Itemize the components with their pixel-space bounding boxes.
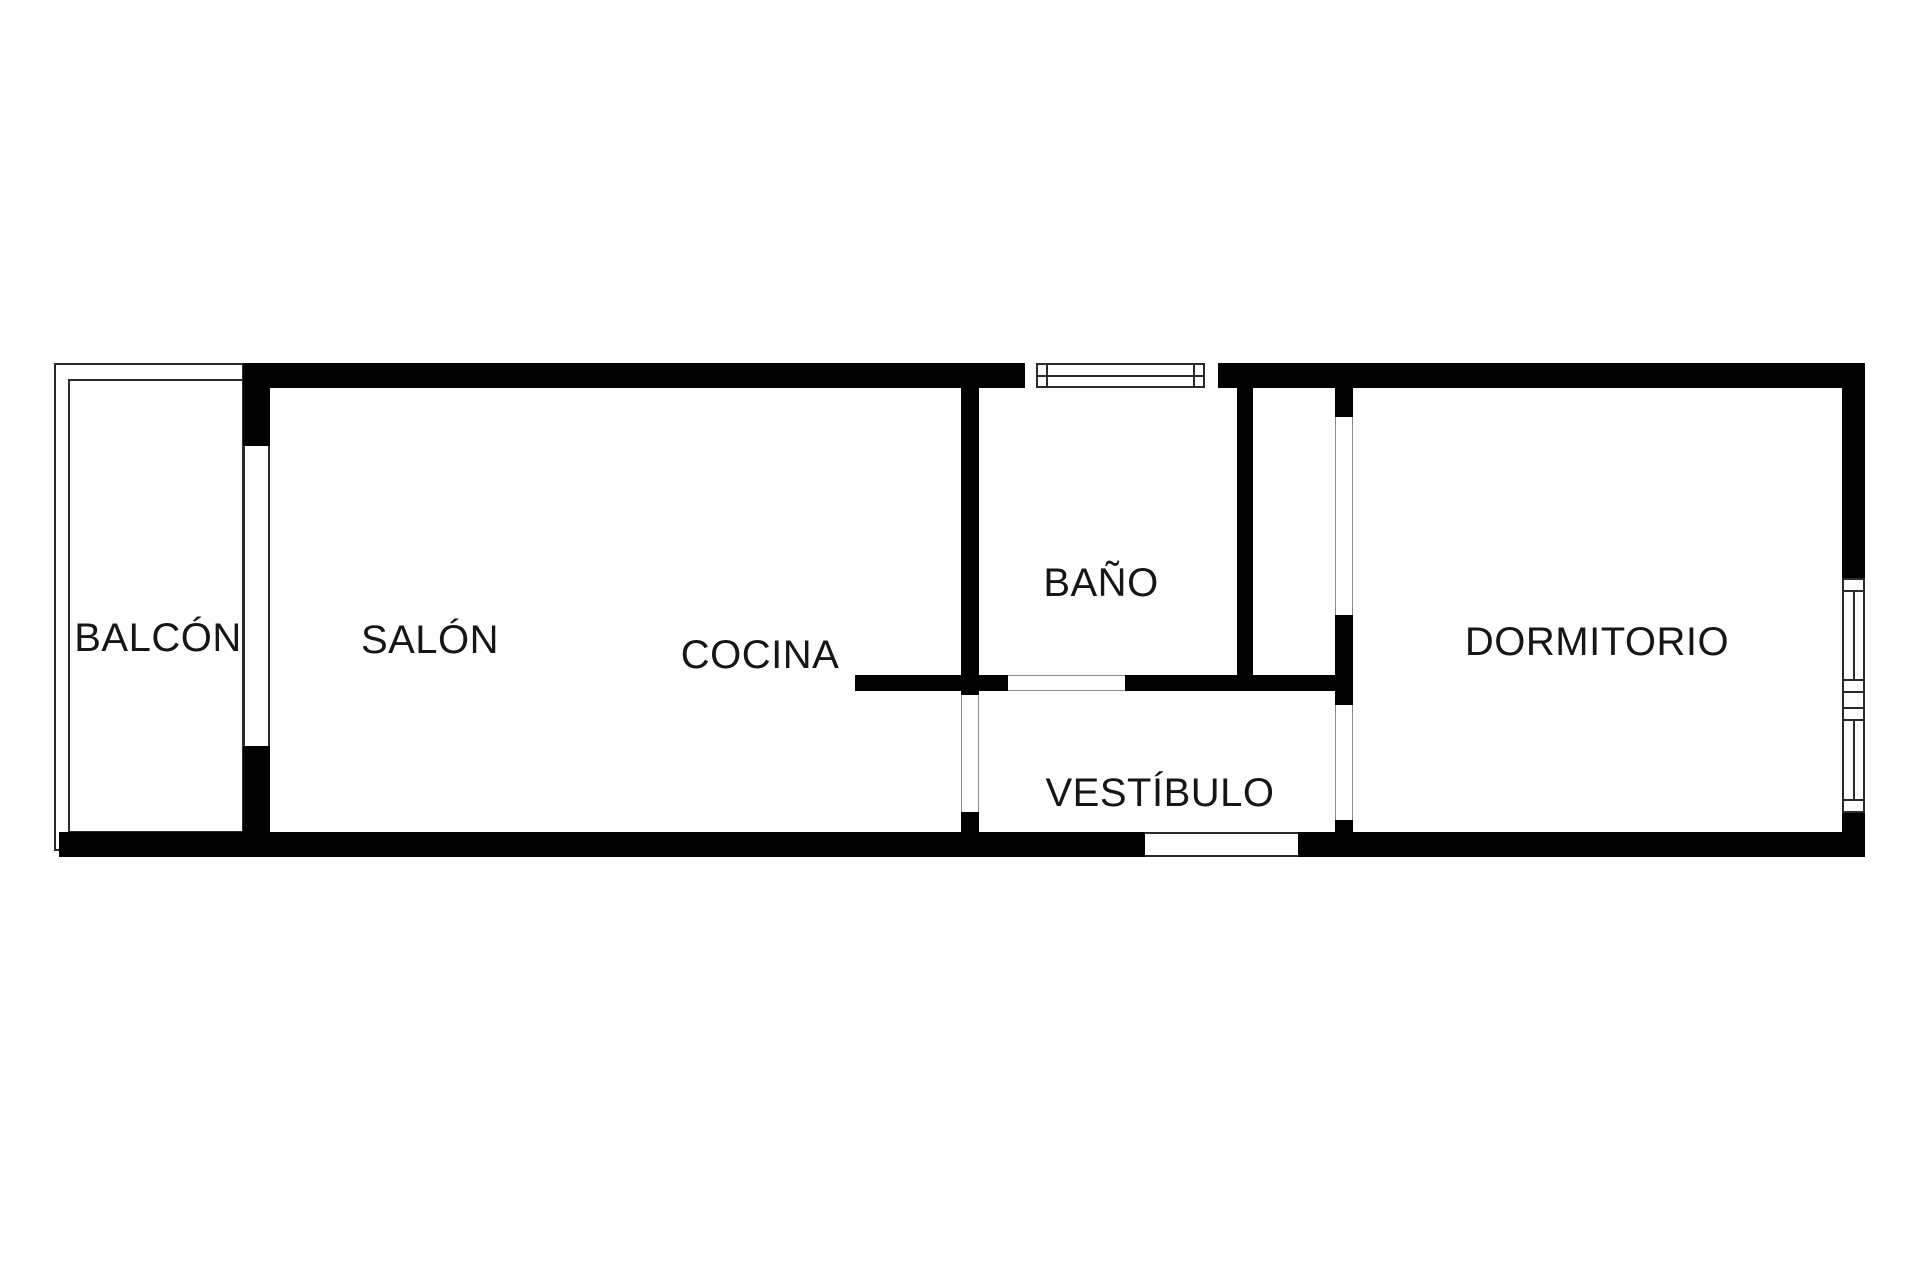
wall-bath-right bbox=[1237, 385, 1253, 691]
bath-door-opening bbox=[1008, 675, 1125, 691]
wall-kitchen-bath-vertical bbox=[961, 385, 979, 695]
right-window-upper-top-cap bbox=[1844, 590, 1863, 592]
wall-balcony-divider-top bbox=[243, 363, 270, 446]
wall-bottom-right-segment bbox=[1298, 832, 1865, 857]
wall-top-left-segment bbox=[243, 363, 1025, 388]
right-window-lower bbox=[1842, 707, 1865, 813]
top-window-left-cap bbox=[1046, 365, 1048, 386]
room-label-balcon: BALCÓN bbox=[74, 618, 242, 658]
right-window-lower-bottom-cap bbox=[1844, 799, 1863, 801]
right-window-upper bbox=[1842, 578, 1865, 693]
dormitorio-upper-opening bbox=[1335, 417, 1353, 615]
balcony-door-opening bbox=[243, 446, 270, 746]
wall-bath-south-right bbox=[1125, 675, 1337, 691]
wall-dormitorio-left-mid bbox=[1335, 615, 1353, 705]
wall-bath-south-left bbox=[979, 675, 1008, 691]
wall-kitchen-south bbox=[855, 675, 979, 691]
top-window bbox=[1036, 363, 1205, 388]
right-window-upper-mid-line bbox=[1853, 590, 1855, 681]
wall-top-right-segment bbox=[1218, 363, 1865, 388]
wall-dormitorio-left-bottom-stub bbox=[1335, 820, 1353, 834]
room-label-salon: SALÓN bbox=[361, 620, 499, 660]
room-label-cocina: COCINA bbox=[681, 635, 840, 675]
room-label-dormitorio: DORMITORIO bbox=[1465, 622, 1729, 662]
dormitorio-lower-opening bbox=[1335, 705, 1353, 820]
balcony-inner-outline bbox=[68, 379, 245, 833]
wall-right-upper-segment bbox=[1842, 363, 1865, 578]
entrance-opening bbox=[1145, 832, 1298, 857]
wall-vestibulo-left-stub bbox=[961, 812, 979, 834]
top-window-right-cap bbox=[1193, 365, 1195, 386]
right-window-upper-bottom-cap bbox=[1844, 679, 1863, 681]
wall-dormitorio-left-top-stub bbox=[1335, 385, 1353, 417]
top-window-mid-line bbox=[1038, 375, 1203, 377]
salon-vestibulo-opening bbox=[961, 695, 979, 812]
room-label-vestibulo: VESTÍBULO bbox=[1045, 773, 1274, 813]
right-window-lower-mid-line bbox=[1853, 719, 1855, 801]
wall-balcony-divider-bottom bbox=[243, 746, 270, 857]
right-window-lower-top-cap bbox=[1844, 719, 1863, 721]
wall-bottom-left-segment bbox=[59, 832, 1145, 857]
room-label-bano: BAÑO bbox=[1043, 563, 1158, 603]
floor-plan: BALCÓN SALÓN COCINA BAÑO VESTÍBULO DORMI… bbox=[0, 0, 1920, 1280]
